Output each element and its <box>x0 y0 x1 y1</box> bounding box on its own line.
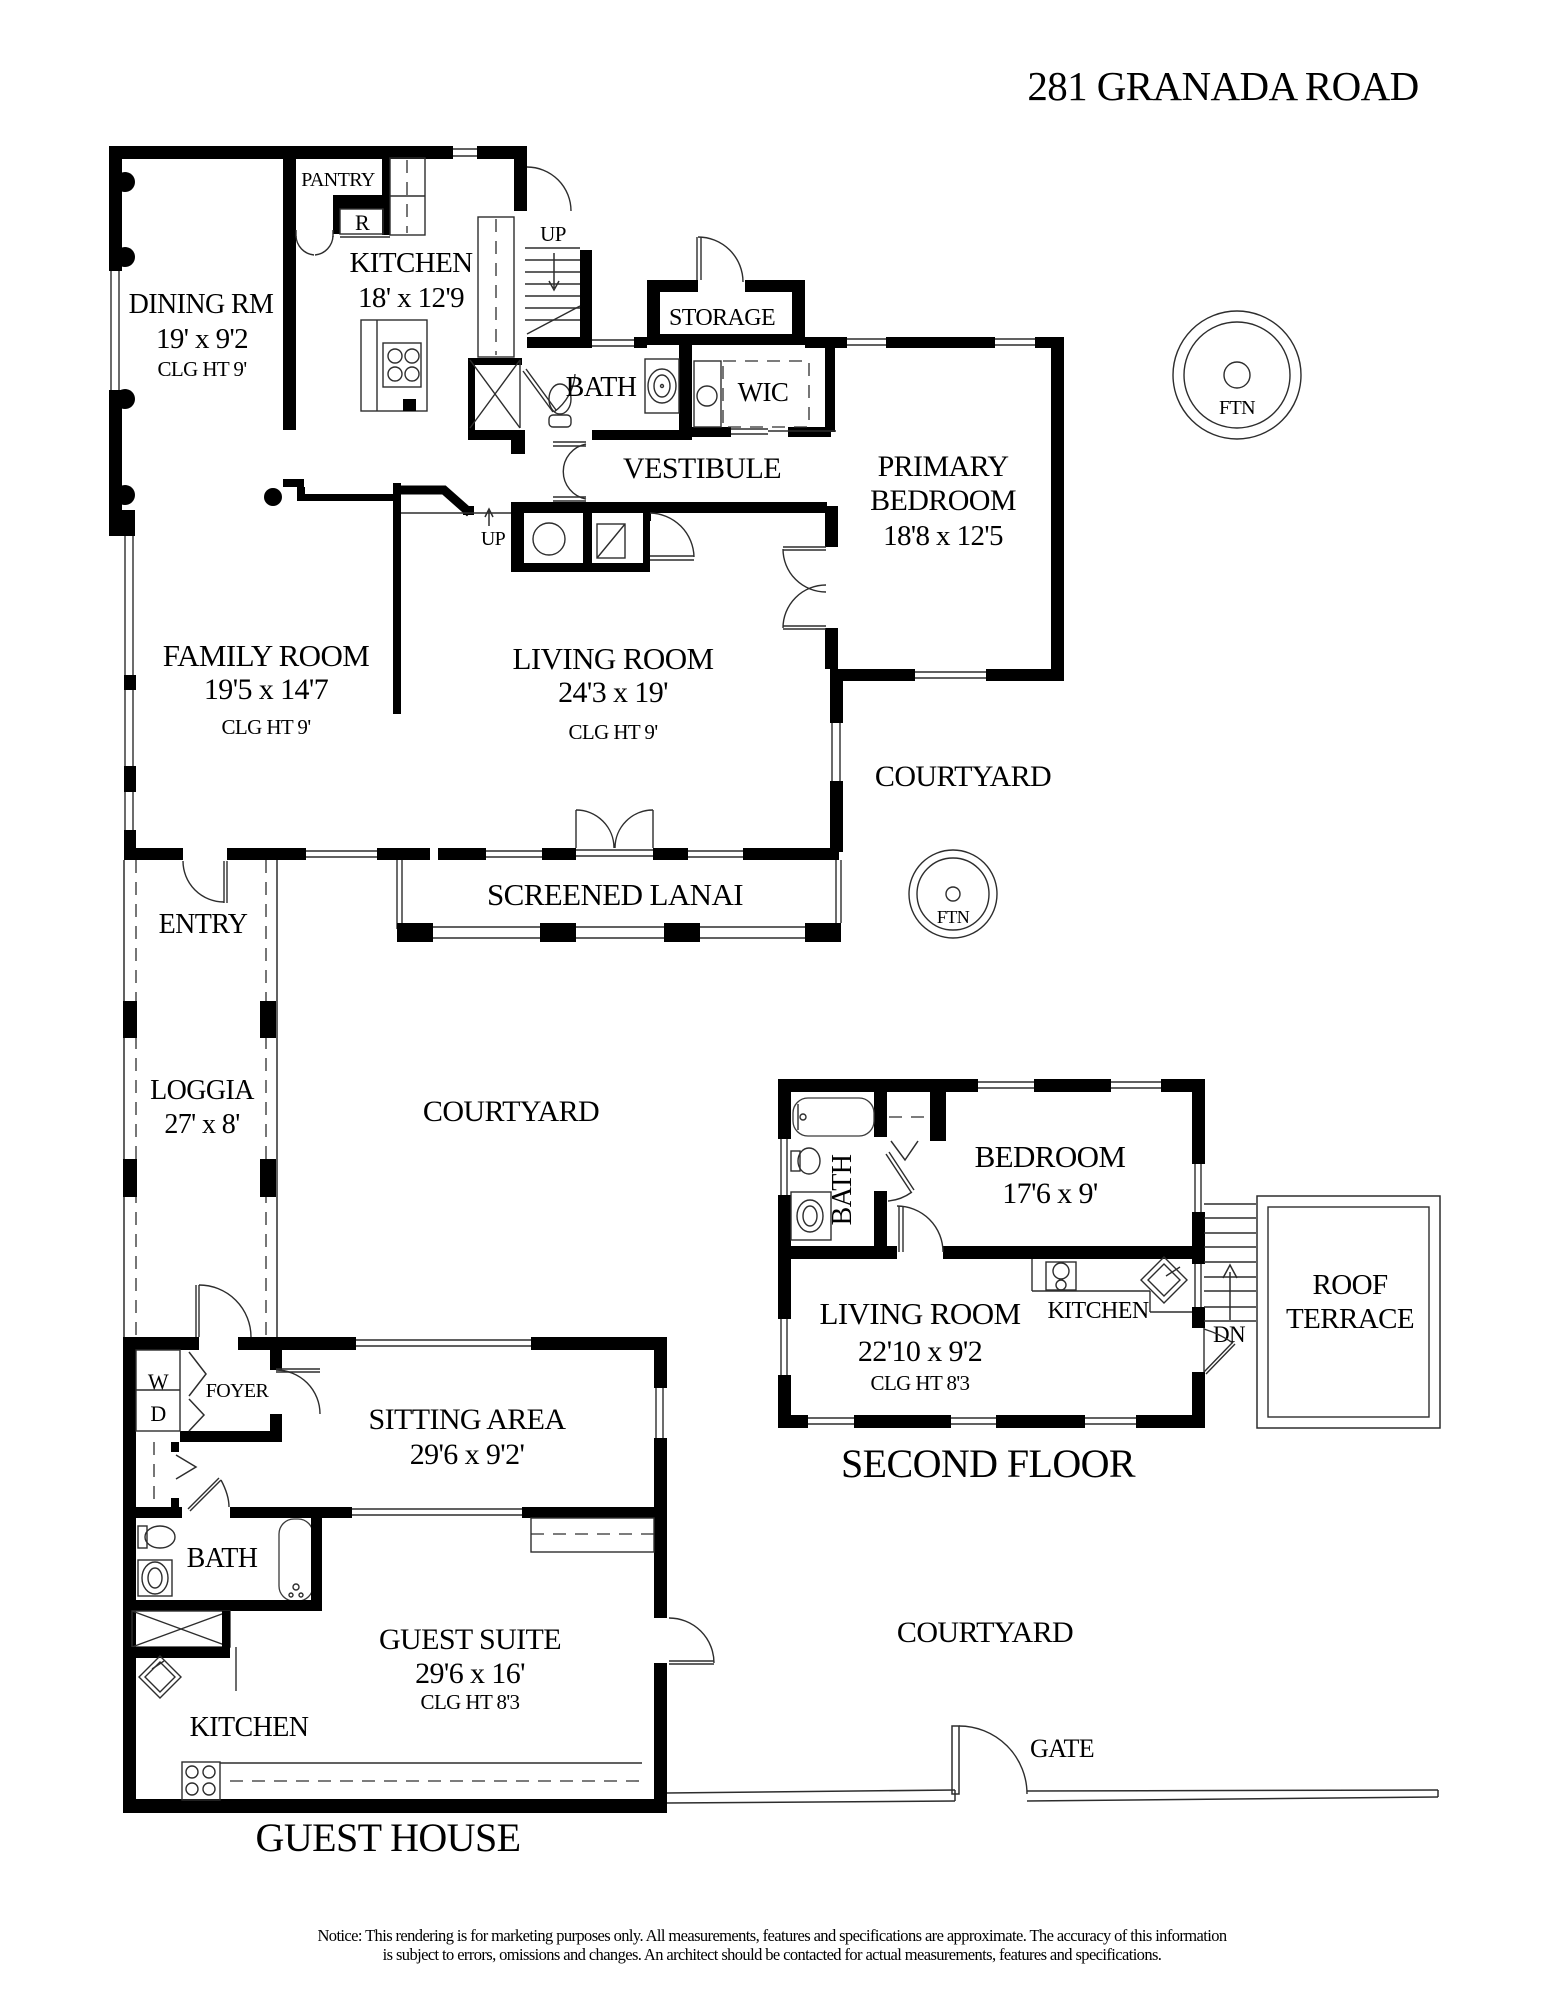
svg-text:GUEST HOUSE: GUEST HOUSE <box>256 1815 521 1860</box>
svg-text:SECOND FLOOR: SECOND FLOOR <box>841 1441 1136 1486</box>
svg-text:281 GRANADA ROAD: 281 GRANADA ROAD <box>1027 63 1418 109</box>
svg-text:FTN: FTN <box>937 907 970 927</box>
svg-text:SITTING AREA: SITTING AREA <box>369 1403 567 1436</box>
svg-text:29'6 x 9'2': 29'6 x 9'2' <box>410 1438 525 1471</box>
svg-text:COURTYARD: COURTYARD <box>897 1616 1073 1649</box>
svg-text:W: W <box>148 1369 169 1394</box>
svg-text:is subject to errors, omission: is subject to errors, omissions and chan… <box>383 1945 1162 1964</box>
svg-text:COURTYARD: COURTYARD <box>423 1095 599 1128</box>
svg-text:SCREENED LANAI: SCREENED LANAI <box>487 877 743 912</box>
svg-text:UP: UP <box>481 528 506 550</box>
svg-text:CLG HT 8'3: CLG HT 8'3 <box>421 1690 520 1714</box>
svg-text:24'3 x 19': 24'3 x 19' <box>558 676 668 709</box>
svg-text:BEDROOM: BEDROOM <box>975 1139 1126 1174</box>
svg-text:WIC: WIC <box>738 377 789 407</box>
svg-text:BATH: BATH <box>827 1154 858 1225</box>
svg-text:Notice: This rendering is for: Notice: This rendering is for marketing … <box>317 1926 1226 1945</box>
svg-text:TERRACE: TERRACE <box>1286 1303 1414 1335</box>
svg-text:CLG HT 9': CLG HT 9' <box>222 715 311 739</box>
svg-text:CLG HT 8'3: CLG HT 8'3 <box>871 1371 970 1395</box>
svg-text:18' x 12'9: 18' x 12'9 <box>358 282 464 314</box>
svg-text:VESTIBULE: VESTIBULE <box>623 452 781 485</box>
svg-text:FOYER: FOYER <box>206 1380 270 1402</box>
svg-text:CLG HT 9': CLG HT 9' <box>158 357 247 381</box>
svg-text:KITCHEN: KITCHEN <box>349 247 473 279</box>
svg-text:R: R <box>355 210 370 235</box>
svg-text:UP: UP <box>540 222 566 246</box>
svg-text:PRIMARY: PRIMARY <box>878 450 1009 483</box>
svg-text:17'6 x 9': 17'6 x 9' <box>1002 1177 1098 1210</box>
svg-text:GUEST SUITE: GUEST SUITE <box>379 1623 561 1656</box>
svg-text:KITCHEN: KITCHEN <box>1047 1298 1148 1324</box>
svg-text:FTN: FTN <box>1219 397 1255 419</box>
svg-text:ROOF: ROOF <box>1313 1269 1388 1301</box>
svg-text:CLG HT 9': CLG HT 9' <box>569 720 658 744</box>
svg-text:COURTYARD: COURTYARD <box>875 760 1051 793</box>
svg-text:GATE: GATE <box>1030 1734 1094 1763</box>
svg-text:22'10 x 9'2: 22'10 x 9'2 <box>858 1335 982 1368</box>
svg-text:LOGGIA: LOGGIA <box>150 1075 255 1106</box>
svg-text:29'6 x 16': 29'6 x 16' <box>415 1657 525 1690</box>
svg-text:27' x 8': 27' x 8' <box>164 1109 239 1140</box>
svg-text:STORAGE: STORAGE <box>669 305 775 331</box>
svg-text:FAMILY ROOM: FAMILY ROOM <box>163 638 369 673</box>
svg-text:BEDROOM: BEDROOM <box>870 484 1016 517</box>
svg-text:D: D <box>150 1401 165 1426</box>
svg-text:19' x 9'2: 19' x 9'2 <box>156 323 248 355</box>
svg-text:BATH: BATH <box>566 372 637 403</box>
svg-text:DINING RM: DINING RM <box>129 289 274 320</box>
svg-text:BATH: BATH <box>187 1543 258 1574</box>
svg-text:ENTRY: ENTRY <box>159 909 248 940</box>
svg-text:LIVING ROOM: LIVING ROOM <box>820 1296 1021 1331</box>
svg-text:LIVING ROOM: LIVING ROOM <box>513 641 714 676</box>
svg-text:KITCHEN: KITCHEN <box>190 1712 309 1743</box>
svg-text:19'5 x 14'7: 19'5 x 14'7 <box>204 673 329 706</box>
svg-text:18'8 x 12'5: 18'8 x 12'5 <box>883 520 1003 552</box>
svg-text:PANTRY: PANTRY <box>301 169 375 191</box>
